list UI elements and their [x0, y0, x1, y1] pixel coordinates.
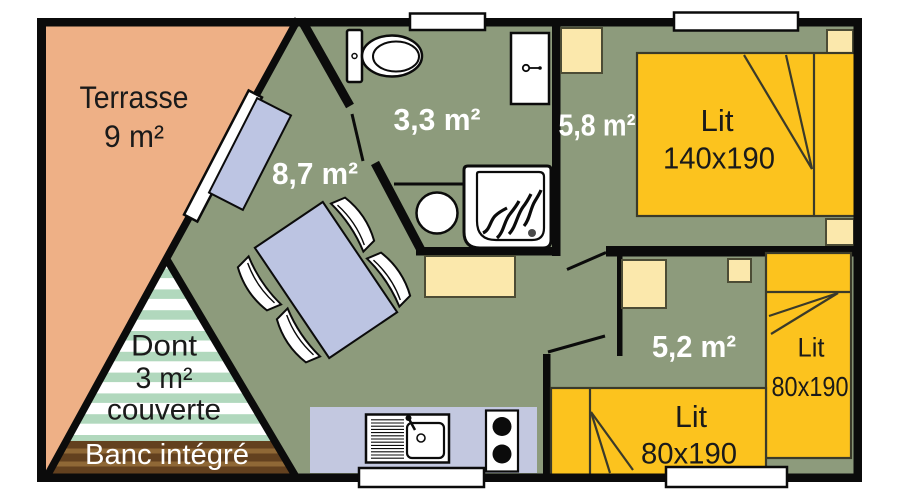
svg-text:9 m²: 9 m²	[104, 118, 164, 154]
svg-text:Dont: Dont	[131, 330, 198, 363]
svg-text:Banc intégré: Banc intégré	[85, 439, 249, 471]
svg-text:80x190: 80x190	[772, 371, 849, 402]
svg-text:Lit: Lit	[798, 333, 825, 363]
svg-text:140x190: 140x190	[663, 142, 775, 176]
svg-text:Terrasse: Terrasse	[80, 79, 189, 115]
svg-text:8,7 m²: 8,7 m²	[272, 157, 358, 191]
svg-text:3 m²: 3 m²	[136, 362, 193, 395]
svg-text:Lit: Lit	[701, 104, 735, 138]
svg-text:5,2 m²: 5,2 m²	[652, 330, 736, 364]
svg-text:Lit: Lit	[675, 399, 707, 434]
svg-text:3,3 m²: 3,3 m²	[394, 103, 481, 137]
svg-text:5,8 m²: 5,8 m²	[559, 109, 636, 143]
svg-text:80x190: 80x190	[641, 438, 737, 471]
svg-text:couverte: couverte	[107, 394, 221, 427]
